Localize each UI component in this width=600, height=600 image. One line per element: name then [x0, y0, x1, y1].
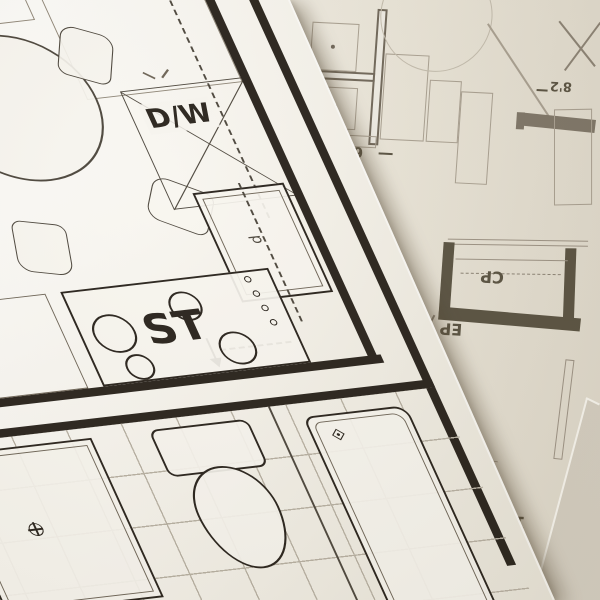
knob-dot-3	[260, 304, 270, 311]
upper-cabinet-left	[0, 0, 35, 30]
top-blueprint-sheet: D/W d	[0, 0, 600, 600]
knob-dot-2	[251, 290, 261, 297]
knob-dot-4	[269, 319, 279, 326]
dining-chair-3	[10, 220, 74, 277]
photo-of-floor-plans: d 6'0 8'2	[0, 0, 600, 600]
burner-1	[85, 312, 144, 355]
knob-dot-1	[243, 276, 253, 283]
stove-label: ST	[134, 301, 216, 355]
tub-drain-dot	[336, 433, 340, 437]
burner-4	[213, 330, 264, 367]
top-sheet-shadow-wrap: D/W d	[0, 0, 600, 600]
burner-3	[121, 353, 160, 382]
